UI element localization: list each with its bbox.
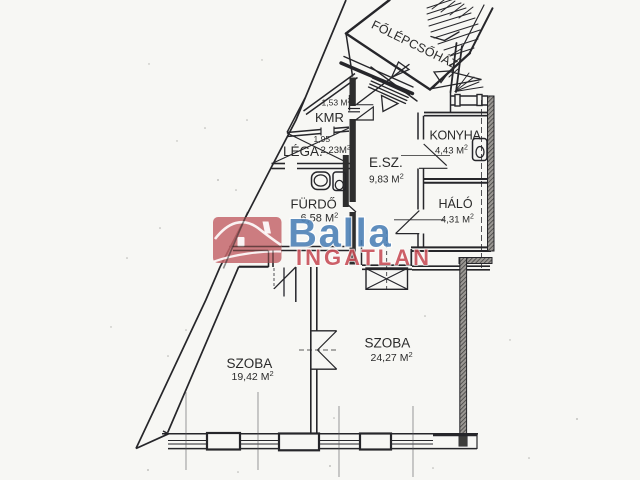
svg-text:4,43 M2: 4,43 M2 [435,145,468,157]
svg-text:LÉGA.: LÉGA. [283,144,323,159]
svg-text:SZOBA: SZOBA [227,356,273,371]
svg-text:HÁLÓ: HÁLÓ [439,196,473,211]
svg-text:4,31 M2: 4,31 M2 [441,214,474,226]
svg-text:19,42 M2: 19,42 M2 [232,369,274,383]
svg-text:SZOBA: SZOBA [365,336,411,351]
svg-text:24,27 M2: 24,27 M2 [371,350,413,364]
svg-text:2,23M2: 2,23M2 [321,145,351,157]
svg-text:KONYHA: KONYHA [430,129,482,143]
svg-text:E.SZ.: E.SZ. [369,155,403,170]
svg-text:KMR: KMR [315,110,344,125]
svg-text:9,83 M2: 9,83 M2 [369,172,404,186]
svg-text:INGATLAN: INGATLAN [296,245,432,270]
svg-text:1,95: 1,95 [314,134,331,144]
svg-text:FÜRDŐ: FÜRDŐ [291,197,337,212]
svg-text:1,53 M2: 1,53 M2 [322,98,352,108]
